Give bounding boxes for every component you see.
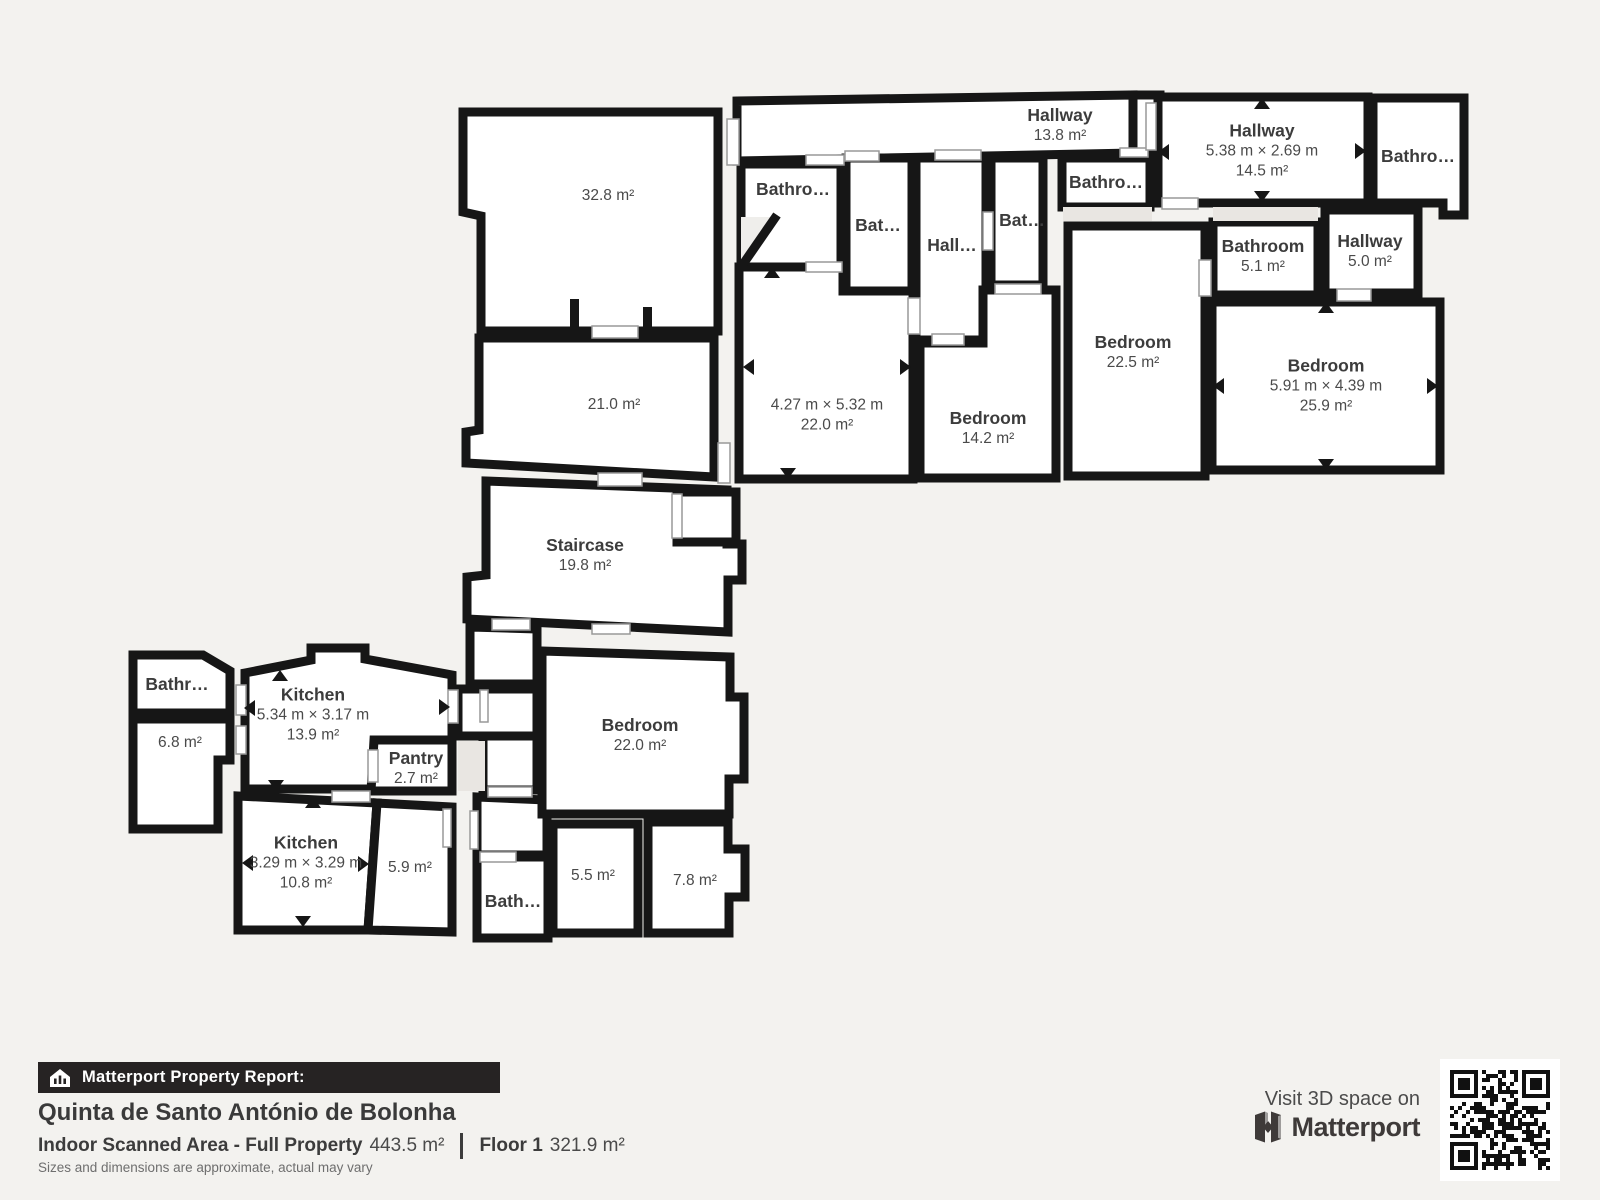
qr-code bbox=[1440, 1059, 1560, 1181]
room-shape-corridor bbox=[458, 689, 537, 736]
room-shape-bathroom-b bbox=[846, 158, 912, 293]
room-shape-bathroom-top-right bbox=[1373, 98, 1464, 215]
room-shape-7-8 bbox=[648, 822, 745, 933]
room-shape-5-9 bbox=[368, 803, 452, 932]
matterport-wordmark: Matterport bbox=[1292, 1112, 1421, 1143]
room-shape-kitchen-10-8 bbox=[238, 796, 377, 930]
room-shape-bathroom-c bbox=[991, 158, 1043, 285]
report-label: Matterport Property Report: bbox=[82, 1068, 305, 1087]
matterport-brand: Matterport bbox=[1140, 1111, 1420, 1143]
room-shape-hall-mid bbox=[916, 158, 986, 340]
floorplan bbox=[0, 0, 1600, 1045]
room-shape-6-8 bbox=[133, 719, 230, 829]
visit-3d-label: Visit 3D space on bbox=[1140, 1088, 1420, 1111]
room-shape-vestibule bbox=[470, 627, 537, 684]
room-shape-hallway-5-0 bbox=[1325, 210, 1418, 293]
room-shape-closet bbox=[483, 736, 537, 790]
room-shape-bedroom-25-9 bbox=[1212, 302, 1440, 470]
property-report-icon bbox=[49, 1067, 71, 1089]
room-shape-bathroom-left bbox=[133, 655, 230, 713]
room-shape-5-5 bbox=[553, 824, 638, 933]
floor-label: Floor 1 bbox=[479, 1135, 542, 1157]
area-stats: Indoor Scanned Area - Full Property 443.… bbox=[38, 1133, 625, 1159]
room-shape-lobby bbox=[477, 797, 547, 855]
matterport-logo-icon bbox=[1253, 1111, 1283, 1143]
room-shape-alcove bbox=[677, 492, 736, 542]
scanned-area-label: Indoor Scanned Area - Full Property bbox=[38, 1135, 362, 1157]
room-shape-bedroom-22-0 bbox=[542, 651, 744, 814]
room-shape-22-0-upper bbox=[739, 267, 913, 479]
disclaimer-text: Sizes and dimensions are approximate, ac… bbox=[38, 1160, 373, 1175]
room-shape-hallway-14-5 bbox=[1158, 97, 1368, 203]
room-shape-21-0 bbox=[466, 338, 714, 477]
room-shape-bedroom-22-5 bbox=[1068, 226, 1205, 476]
stats-divider bbox=[460, 1133, 463, 1159]
report-header-bar: Matterport Property Report: bbox=[38, 1062, 500, 1093]
room-shape-bathroom-5-1 bbox=[1213, 222, 1318, 295]
room-shape-bathroom-d bbox=[1062, 158, 1150, 207]
room-shape-pantry bbox=[371, 740, 452, 791]
property-name: Quinta de Santo António de Bolonha bbox=[38, 1099, 456, 1127]
scanned-area-value: 443.5 m² bbox=[369, 1135, 444, 1157]
room-shape-32-8 bbox=[463, 112, 718, 331]
room-shape-bath-small bbox=[477, 857, 548, 938]
floor-value: 321.9 m² bbox=[550, 1135, 625, 1157]
